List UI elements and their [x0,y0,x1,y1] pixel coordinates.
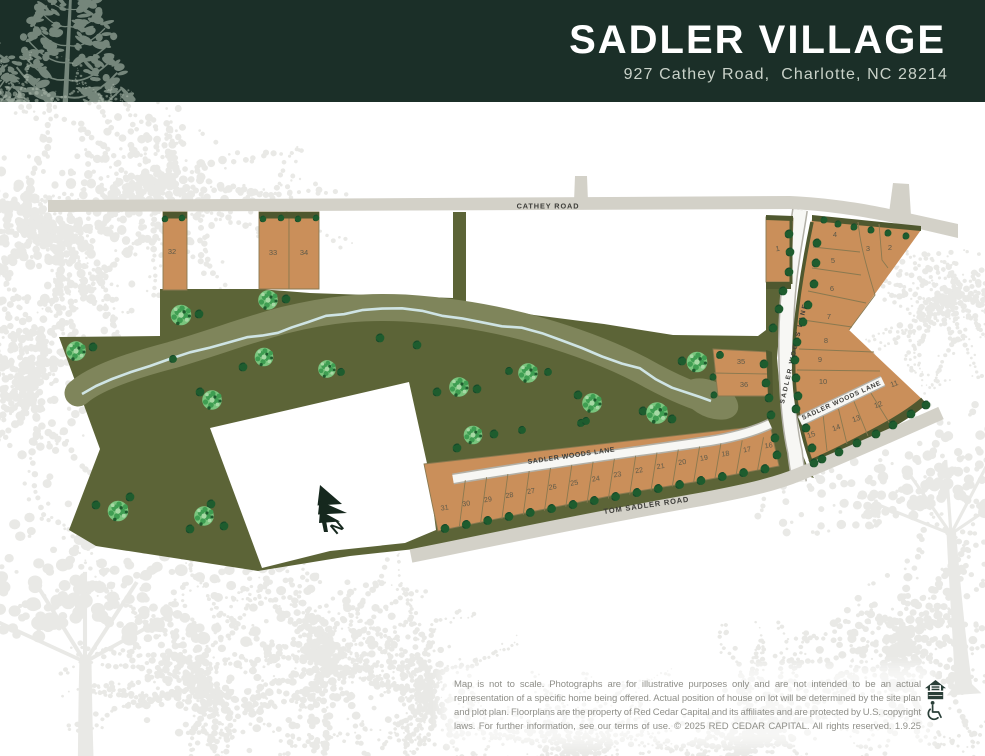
svg-text:4: 4 [833,230,837,239]
svg-text:8: 8 [824,336,828,345]
svg-text:CATHEY ROAD: CATHEY ROAD [517,201,580,210]
svg-text:5: 5 [831,256,835,265]
svg-text:18: 18 [721,449,730,459]
svg-text:31: 31 [440,502,449,512]
svg-text:27: 27 [526,486,535,496]
svg-text:3: 3 [866,244,870,253]
svg-text:22: 22 [634,465,643,475]
svg-text:33: 33 [269,248,277,257]
svg-text:7: 7 [827,312,831,321]
svg-text:19: 19 [699,453,708,463]
svg-text:36: 36 [740,380,748,389]
svg-text:26: 26 [548,482,557,492]
svg-text:30: 30 [462,498,471,508]
svg-text:9: 9 [818,355,822,364]
svg-text:16: 16 [764,440,773,450]
svg-text:2: 2 [888,243,892,252]
svg-text:21: 21 [656,461,665,471]
svg-text:20: 20 [678,457,687,467]
svg-text:25: 25 [570,478,579,488]
svg-text:23: 23 [613,469,622,479]
svg-text:24: 24 [591,473,600,483]
svg-text:35: 35 [737,357,745,366]
svg-text:17: 17 [742,444,751,454]
svg-text:34: 34 [300,248,308,257]
svg-text:10: 10 [819,377,827,386]
svg-text:29: 29 [483,494,492,504]
svg-text:28: 28 [505,490,514,500]
svg-text:32: 32 [168,247,176,256]
svg-text:6: 6 [830,284,834,293]
